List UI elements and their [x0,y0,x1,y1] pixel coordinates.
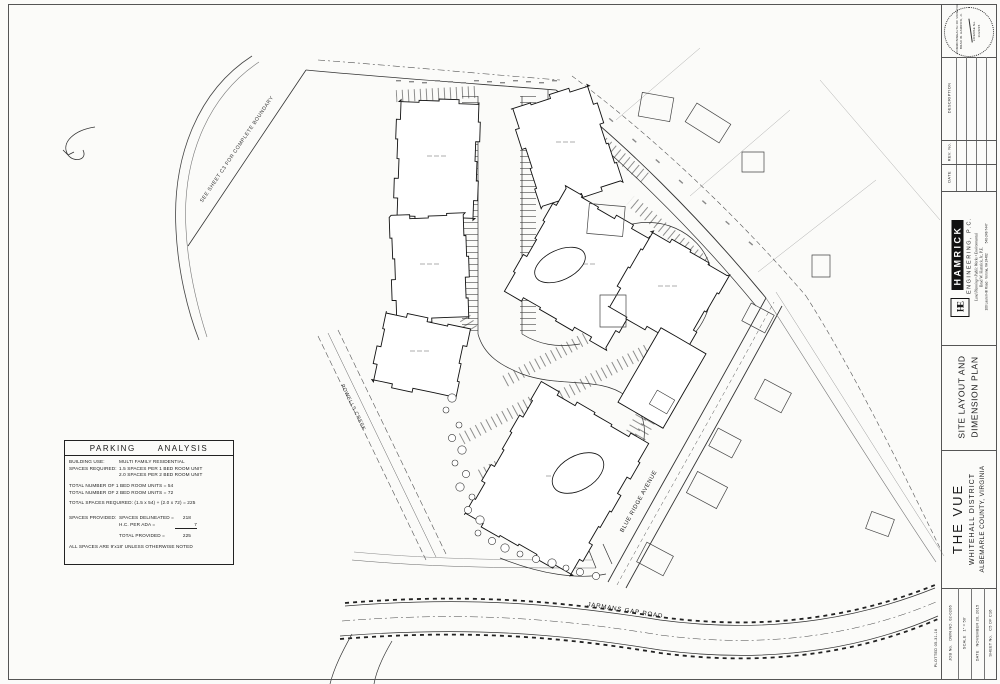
spaces-provided-label: SPACES PROVIDED: [69,515,119,522]
scale-field: SCALE1" = 50' [962,617,967,649]
revision-rev-header: REV. No. [947,143,952,162]
job-value: DWN NO. 02-0206 [948,605,953,641]
scale-value: 1" = 50' [962,617,967,632]
titleblock-left-border [941,4,942,679]
spaces-required-label: SPACES REQUIRED: [69,466,119,473]
revision-date-header: DATE [947,171,952,183]
revision-table-line [942,140,996,141]
total-spaces-required: TOTAL SPACES REQUIRED: (1.5 x 54) + (2.0… [69,500,195,507]
firm-phone: 540-248-7447 [985,223,989,243]
job-label: JOB No. [948,645,953,661]
hc-value: 7 [175,522,197,530]
parking-note: ALL SPACES ARE 9'x18' UNLESS OTHERWISE N… [69,544,193,551]
parking-analysis-body: BUILDING USE:MULTI FAMILY RESIDENTIAL SP… [65,456,233,554]
revision-description-header: DESCRIPTION [947,83,952,114]
info-divider [958,588,959,679]
parking-analysis-table: PARKING ANALYSIS BUILDING USE:MULTI FAMI… [64,440,234,565]
revision-table-line [956,57,957,191]
job-number-field: JOB No.DWN NO. 02-0206 [948,605,953,661]
firm-tagline: Land Planning • Public Works • Environme… [975,192,979,342]
revision-table-line [966,57,967,191]
spaces-required-line2: 2.0 SPACES PER 2 BED ROOM UNIT [119,472,202,479]
delineated-label: SPACES DELINEATED = [119,515,175,522]
project-district: WHITEHALL DISTRICT [969,466,976,573]
project-name: THE VUE [950,466,965,573]
revision-table-line [986,57,987,191]
firm-type: ENGINEERING, P.C. [967,217,973,294]
date-value: NOVEMBER 20, 2015 [975,605,980,647]
parking-title-word2: ANALYSIS [158,444,209,453]
project-location: ALBEMARLE COUNTY, VIRGINIA [979,466,986,573]
date-field: DATENOVEMBER 20, 2015 [975,605,980,662]
sheet-label: SHEET No. [988,635,993,657]
delineated-value: 218 [175,515,191,522]
firm-principal: Brad W. Hamrick, Jr., P.E. [980,192,984,342]
firm-block: HE HAMRICK ENGINEERING, P.C. Land Planni… [948,192,989,342]
seal-name: BRAD W. HAMRICK, Jr. [959,13,963,49]
revision-table-line [976,57,977,191]
sheet-value: C5 OF C16 [988,609,993,630]
total-2br-units: TOTAL NUMBER OF 2 BED ROOM UNITS = 72 [69,490,173,497]
pe-seal-text: COMMONWEALTH OF VIRGINIA BRAD W. HAMRICK… [955,8,981,54]
sheet-number-field: SHEET No.C5 OF C16 [988,609,993,656]
sheet-title-line1: SITE LAYOUT AND [955,355,968,438]
info-divider [971,588,972,679]
total-provided-label: TOTAL PROVIDED = [119,533,175,540]
revision-table-line [942,164,996,165]
parking-title-word1: PARKING [90,444,136,453]
firm-name: HAMRICK [952,221,964,291]
building-use-label: BUILDING USE: [69,459,119,466]
sheet-title: SITE LAYOUT AND DIMENSION PLAN [955,355,981,438]
total-provided-value: 225 [175,533,191,540]
titleblock-divider [942,345,996,346]
date-label: DATE [975,651,980,662]
firm-address: 100 Laurel Hill Road · Verona, VA 24482 [985,253,989,310]
total-1br-units: TOTAL NUMBER OF 1 BED ROOM UNITS = 54 [69,483,173,490]
info-divider [984,588,985,679]
building-use-value: MULTI FAMILY RESIDENTIAL [119,459,185,466]
project-block: THE VUE WHITEHALL DISTRICT ALBEMARLE COU… [950,466,986,573]
sheet-title-line2: DIMENSION PLAN [968,355,981,438]
sheet-border [8,4,997,680]
plotted-stamp: PLOTTED 05-31-16 [934,629,938,668]
firm-logo: HE [951,298,970,317]
titleblock-divider [942,588,996,589]
seal-date: 11/20/15 [977,24,981,37]
scale-label: SCALE [962,635,967,649]
hc-label: H.C. PER ADA = [119,522,175,530]
spaces-required-line1: 1.5 SPACES PER 1 BED ROOM UNIT [119,466,202,473]
titleblock-divider [942,57,996,58]
plan-sheet: { "plan": { "boundary_note": "SEE SHEET … [0,0,1000,684]
titleblock-divider [942,450,996,451]
parking-analysis-title: PARKING ANALYSIS [65,441,233,456]
